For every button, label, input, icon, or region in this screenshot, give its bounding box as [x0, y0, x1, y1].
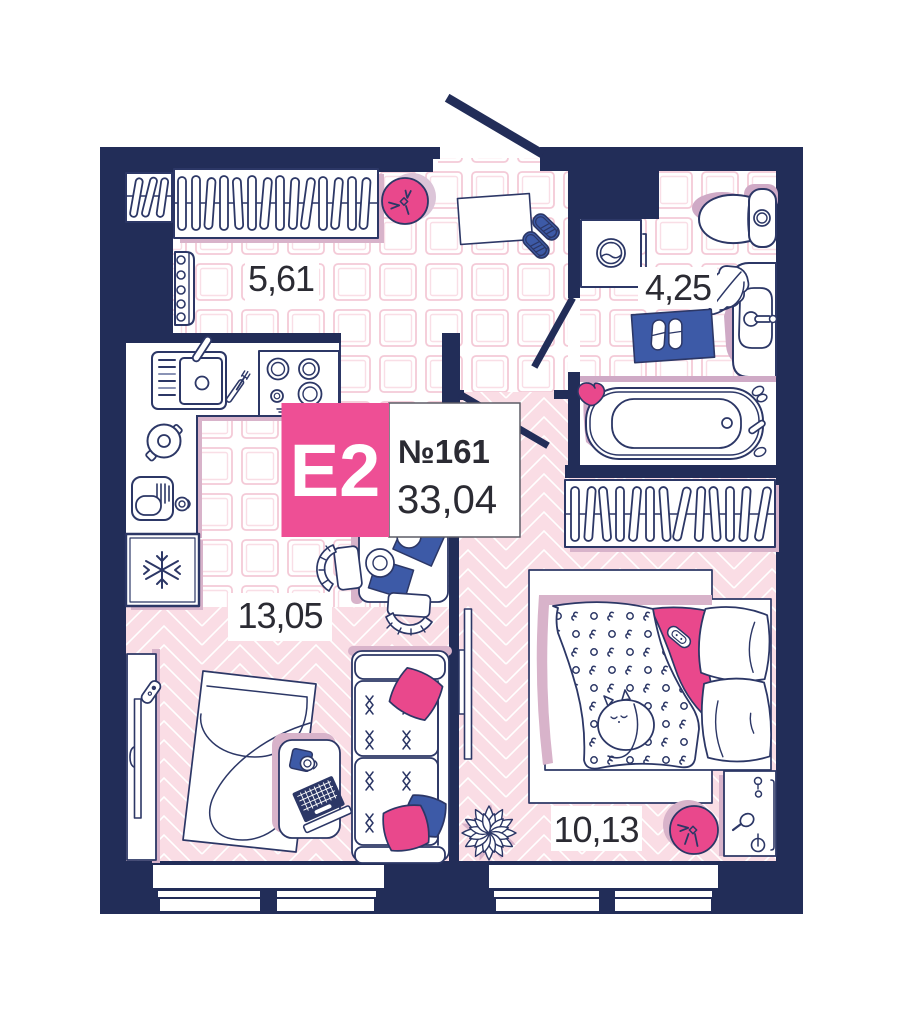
svg-text:33,04: 33,04 [397, 478, 497, 522]
svg-text:13,05: 13,05 [237, 595, 322, 636]
svg-text:Е2: Е2 [290, 429, 381, 512]
svg-text:4,25: 4,25 [645, 267, 711, 308]
svg-text:10,13: 10,13 [553, 809, 638, 850]
svg-text:5,61: 5,61 [248, 258, 314, 299]
svg-text:№161: №161 [398, 433, 490, 470]
